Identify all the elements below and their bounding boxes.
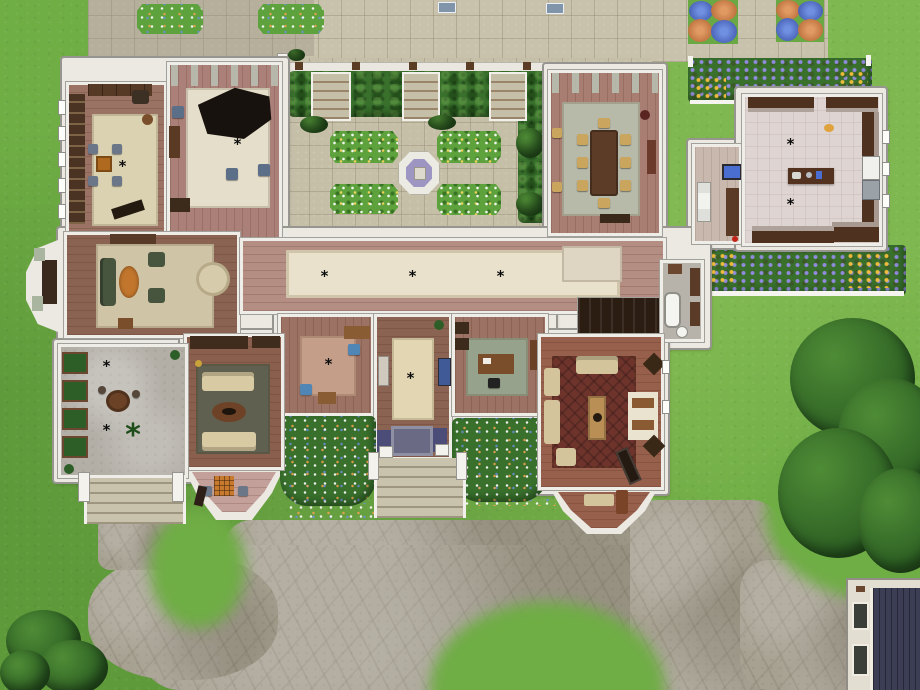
study-desk[interactable] [318, 392, 336, 404]
courtyard-flower-bed[interactable] [437, 131, 501, 163]
window [58, 204, 66, 219]
library-card-table[interactable] [96, 156, 112, 172]
west-porch-steps[interactable] [84, 478, 186, 524]
living-console[interactable] [110, 234, 156, 244]
sitting-top-cabinets[interactable] [190, 336, 248, 349]
music-desk[interactable] [169, 126, 180, 158]
kitchen-south-garden-yellow [846, 252, 890, 288]
living-round-rug [196, 262, 230, 296]
foyer-console-left[interactable] [378, 356, 389, 386]
dining-side-chair[interactable] [552, 128, 562, 138]
planter-box[interactable] [62, 436, 88, 458]
dining-wall-clock[interactable] [640, 110, 650, 120]
flower-square[interactable] [688, 0, 738, 44]
dining-chair[interactable] [620, 180, 631, 191]
library-side-table[interactable] [142, 114, 153, 125]
pergola-post [409, 62, 417, 70]
family-desk-area[interactable] [628, 392, 658, 440]
living-sofa[interactable] [100, 258, 116, 306]
lawn-bush[interactable] [0, 650, 50, 690]
courtyard-tree[interactable] [516, 128, 544, 158]
entry-recess [391, 426, 433, 456]
kitchen-island[interactable] [788, 168, 834, 184]
courtyard-flower-bed[interactable] [330, 184, 398, 214]
island-items [806, 172, 812, 178]
conservatory-lamp[interactable]: * [102, 426, 111, 434]
blue-flower-clump [776, 18, 799, 41]
bay-seat[interactable] [32, 296, 43, 311]
library-chair[interactable] [88, 144, 98, 154]
stove[interactable] [862, 180, 880, 200]
porch-pillar [172, 472, 184, 502]
dining-chair[interactable] [620, 157, 631, 168]
family-sofa[interactable] [576, 356, 618, 374]
living-armchair[interactable] [148, 288, 165, 303]
window [662, 360, 670, 374]
library-chair[interactable] [88, 176, 98, 186]
study-ceiling-lamp[interactable]: * [324, 360, 333, 368]
kitchen-counter-right-upper[interactable] [862, 112, 879, 156]
bath-cabinet[interactable] [690, 302, 700, 326]
family-bay-bench[interactable] [584, 494, 614, 506]
dining-table[interactable] [590, 130, 618, 196]
entry-pedestal [379, 446, 393, 458]
living-armchair[interactable] [148, 252, 165, 267]
office-cabinet[interactable] [455, 338, 469, 350]
blue-flower-clump [711, 20, 737, 43]
garden-bench[interactable] [546, 3, 564, 14]
office-desk[interactable] [478, 354, 514, 374]
music-chair[interactable] [226, 168, 238, 180]
window [58, 100, 66, 115]
kitchen-counter-bottom-right[interactable] [832, 222, 879, 242]
fire-extinguisher[interactable] [732, 236, 738, 242]
pergola-post [466, 62, 474, 70]
blue-flower-clump [689, 1, 713, 21]
conservatory-lamp[interactable]: * [102, 362, 111, 370]
table-bowl [593, 413, 602, 422]
entry-pedestal [435, 444, 449, 456]
hallway-ceiling-lamp[interactable]: * [496, 272, 505, 280]
office-cabinet[interactable] [455, 322, 469, 334]
family-bay-bench[interactable] [616, 490, 628, 514]
courtyard-tree[interactable] [428, 115, 456, 130]
planter-box[interactable] [62, 408, 88, 430]
library-chair[interactable] [112, 144, 122, 154]
utility-counter[interactable] [726, 188, 739, 236]
orange-flower-clump [711, 0, 737, 21]
garden-fence [866, 55, 871, 66]
foyer-console-right[interactable] [438, 358, 451, 386]
window [58, 152, 66, 167]
kitchen-ceiling-lamp[interactable]: * [786, 200, 795, 208]
hall-east-rug [562, 246, 622, 282]
conservatory-table[interactable] [106, 390, 130, 412]
pergola-post [295, 62, 303, 70]
kitchen-north-garden-yellow [694, 76, 726, 100]
palm-plant[interactable]: * [124, 432, 142, 440]
dining-chair[interactable] [577, 134, 588, 145]
library-floor-lamp[interactable]: * [118, 162, 127, 170]
music-ceiling-lamp[interactable]: * [233, 140, 242, 148]
conservatory-stool[interactable] [132, 390, 140, 398]
window [662, 400, 670, 414]
dining-chair[interactable] [598, 118, 610, 128]
fridge[interactable] [862, 156, 880, 180]
island-items [816, 171, 822, 179]
library-chair[interactable] [112, 176, 122, 186]
kitchen-counter-bottom[interactable] [752, 226, 834, 243]
courtyard-tree[interactable] [300, 116, 328, 133]
table-decor [222, 408, 236, 415]
hallway-ceiling-lamp[interactable]: * [320, 272, 329, 280]
outbuilding-vent [856, 586, 865, 592]
desk-top [632, 398, 654, 408]
island-sink [792, 172, 801, 179]
newel-post [368, 452, 379, 480]
window [58, 126, 66, 141]
dining-chair[interactable] [577, 157, 588, 168]
window [882, 194, 890, 208]
window [882, 130, 890, 144]
study-chair[interactable] [348, 344, 360, 355]
orange-flower-clump [688, 19, 712, 42]
bathtub[interactable] [664, 292, 681, 328]
utility-wall-screen[interactable] [722, 164, 742, 180]
window [882, 162, 890, 176]
dining-pergola-beams [552, 73, 658, 93]
family-loveseat[interactable] [544, 400, 560, 444]
fruit-bowl[interactable] [824, 124, 834, 132]
entry-bush[interactable] [288, 49, 305, 61]
outbuilding [848, 580, 920, 690]
study-desk[interactable] [344, 326, 370, 339]
family-long-table[interactable] [588, 396, 606, 440]
music-chair[interactable] [172, 106, 184, 118]
bay-desk[interactable] [42, 260, 57, 304]
family-loveseat[interactable] [544, 368, 560, 396]
outbuilding-window [852, 602, 869, 630]
desk-top [632, 420, 654, 430]
library-armchair[interactable] [132, 90, 149, 104]
bay-stool[interactable] [238, 486, 248, 496]
dining-chair[interactable] [577, 180, 588, 191]
toilet[interactable] [676, 326, 688, 338]
pergola-post [523, 62, 531, 70]
library-bookshelves[interactable] [69, 94, 85, 224]
bay-lattice-table[interactable] [214, 476, 234, 496]
pergola-post [352, 62, 360, 70]
planter-box[interactable] [62, 380, 88, 402]
window [58, 178, 66, 193]
fountain-pedestal [414, 167, 426, 180]
courtyard-flower-bed[interactable] [437, 184, 501, 215]
office-chair[interactable] [488, 378, 500, 388]
washer[interactable] [697, 182, 711, 222]
hallway-ceiling-lamp[interactable]: * [408, 272, 417, 280]
dining-sideboard[interactable] [647, 140, 656, 174]
blue-flower-clump [798, 1, 823, 21]
potted-plant[interactable] [64, 464, 74, 474]
potted-plant[interactable] [170, 350, 180, 360]
sitting-gold-lamp[interactable] [195, 360, 202, 367]
sitting-sofa[interactable] [202, 432, 256, 451]
arbor-steps[interactable] [402, 72, 440, 121]
flower-square[interactable] [776, 0, 824, 42]
living-coffee-table[interactable] [119, 266, 139, 298]
garden-fence-rail [694, 291, 904, 296]
orange-flower-clump [798, 19, 823, 41]
bay-seat[interactable] [34, 248, 45, 261]
plaza-flower-bed[interactable] [258, 4, 324, 34]
bath-cabinet[interactable] [690, 268, 700, 296]
kitchen-ceiling-lamp[interactable]: * [786, 140, 795, 148]
lawn-wedge [150, 508, 245, 628]
sitting-sofa[interactable] [202, 372, 254, 391]
study-chair[interactable] [300, 384, 312, 395]
music-pergola-beams [171, 65, 278, 86]
foyer-plant[interactable] [434, 320, 444, 330]
music-cabinet[interactable] [170, 198, 190, 212]
sitting-oval-table[interactable] [212, 402, 246, 422]
dining-chair[interactable] [620, 134, 631, 145]
planter-box[interactable] [62, 352, 88, 374]
office-papers [483, 358, 491, 364]
music-chair[interactable] [258, 164, 270, 176]
kitchen-counter-top[interactable] [748, 97, 814, 112]
porch-pillar [78, 472, 90, 502]
family-armchair[interactable] [556, 448, 576, 466]
arbor-steps[interactable] [311, 72, 351, 121]
living-side-table[interactable] [118, 318, 133, 329]
sitting-top-cabinets[interactable] [252, 336, 280, 348]
plaza-flower-bed[interactable] [137, 4, 203, 34]
kitchen-counter-top-right[interactable] [826, 97, 878, 112]
garden-fence [688, 56, 693, 67]
south-hedge-garden[interactable] [280, 416, 376, 506]
outbuilding-window [852, 644, 869, 676]
foyer-ceiling-lamp[interactable]: * [406, 374, 415, 382]
bath-table[interactable] [668, 264, 682, 274]
garden-bench[interactable] [438, 2, 456, 13]
dining-side-chair[interactable] [552, 182, 562, 192]
dining-chair[interactable] [598, 198, 610, 208]
outbuilding-roof [870, 588, 920, 690]
arbor-steps[interactable] [489, 72, 527, 121]
game-viewport: * * * * [0, 0, 920, 690]
courtyard-tree[interactable] [516, 192, 544, 216]
front-entry-steps[interactable] [374, 458, 466, 518]
dining-bench[interactable] [600, 214, 630, 223]
orange-flower-clump [776, 0, 800, 20]
courtyard-flower-bed[interactable] [330, 131, 398, 163]
conservatory-stool[interactable] [98, 386, 106, 394]
newel-post [456, 452, 467, 480]
